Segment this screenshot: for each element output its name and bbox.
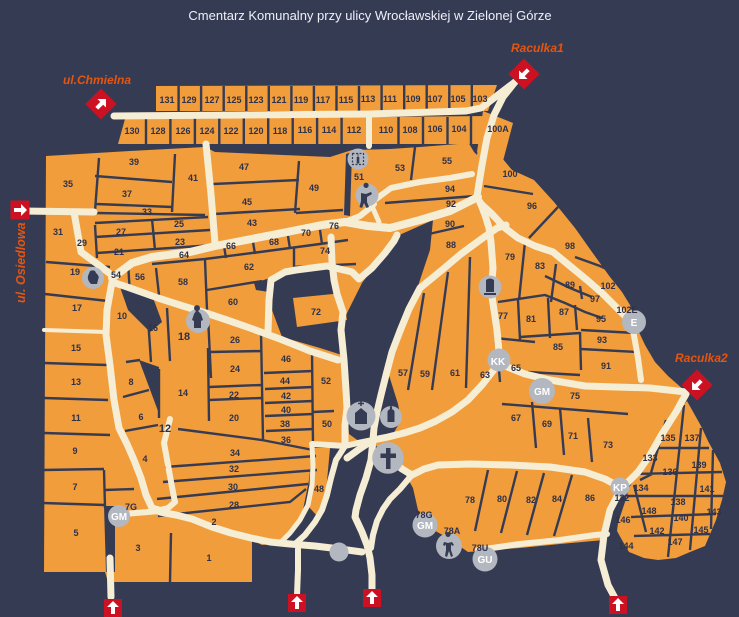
svg-text:GM: GM xyxy=(111,512,127,523)
svg-text:ul.Chmielna: ul.Chmielna xyxy=(63,73,131,87)
svg-text:100A: 100A xyxy=(487,124,509,134)
svg-text:Raculka1: Raculka1 xyxy=(511,41,564,55)
svg-text:54: 54 xyxy=(111,270,121,280)
svg-text:GM: GM xyxy=(417,521,433,532)
svg-text:Cmentarz Komunalny przy ulicy: Cmentarz Komunalny przy ulicy Wrocławski… xyxy=(188,8,551,23)
svg-text:GU: GU xyxy=(478,555,493,566)
svg-text:ul. Osiedlowa: ul. Osiedlowa xyxy=(14,222,28,303)
svg-text:Raculka2: Raculka2 xyxy=(675,351,728,365)
svg-text:KK: KK xyxy=(491,357,506,368)
svg-text:E: E xyxy=(631,318,638,329)
svg-text:131129127125123121119117115113: 1311291271251231211191171151131111091071… xyxy=(159,94,487,105)
svg-text:GM: GM xyxy=(534,387,550,398)
